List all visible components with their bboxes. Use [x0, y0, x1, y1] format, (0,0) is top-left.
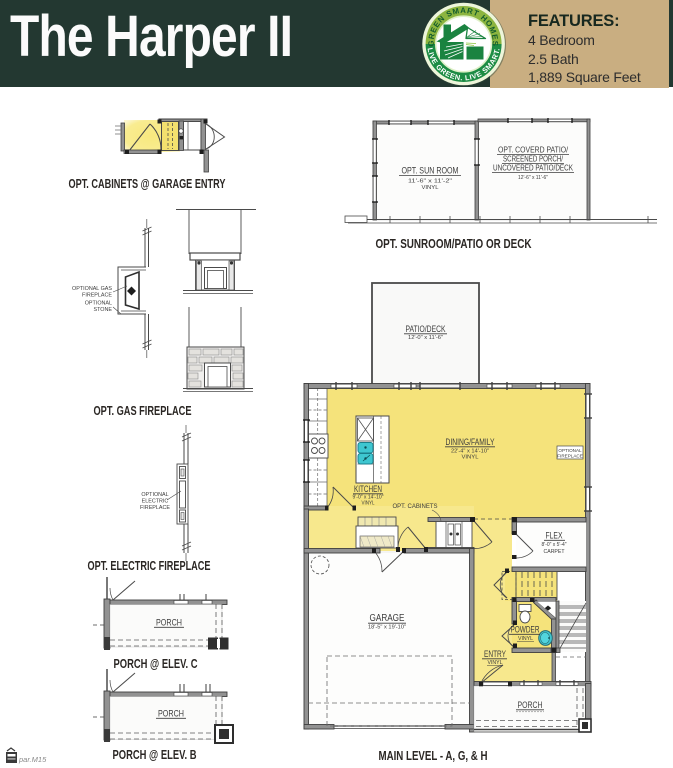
- svg-text:MAIN LEVEL - A, G, & H: MAIN LEVEL - A, G, & H: [379, 749, 488, 763]
- svg-text:OPT. ELECTRIC FIREPLACE: OPT. ELECTRIC FIREPLACE: [88, 559, 211, 573]
- svg-text:VINYL: VINYL: [362, 501, 375, 507]
- svg-text:VINYL: VINYL: [462, 455, 479, 461]
- svg-text:OPTIONAL GAS: OPTIONAL GAS: [72, 286, 112, 292]
- svg-text:11'-6" x 11'-2": 11'-6" x 11'-2": [408, 179, 452, 185]
- svg-text:PORCH: PORCH: [518, 700, 543, 710]
- svg-text:OPTIONAL: OPTIONAL: [558, 448, 582, 453]
- svg-text:POWDER: POWDER: [511, 625, 540, 635]
- svg-text:OPT. CABINETS @ GARAGE ENTRY: OPT. CABINETS @ GARAGE ENTRY: [69, 177, 226, 191]
- svg-text:ENTRY: ENTRY: [484, 649, 506, 659]
- svg-text:OPT. SUNROOM/PATIO OR DECK: OPT. SUNROOM/PATIO OR DECK: [376, 237, 532, 251]
- svg-text:OPT. CABINETS: OPT. CABINETS: [392, 504, 437, 510]
- svg-text:DINING/FAMILY: DINING/FAMILY: [446, 437, 495, 447]
- svg-text:PORCH @ ELEV. B: PORCH @ ELEV. B: [113, 748, 197, 762]
- svg-text:12'-0" x 11'-6": 12'-0" x 11'-6": [408, 335, 443, 341]
- svg-text:PORCH: PORCH: [158, 709, 184, 719]
- svg-text:PATIO/DECK: PATIO/DECK: [406, 324, 446, 334]
- svg-text:FLEX: FLEX: [546, 531, 563, 541]
- svg-text:12'-6" x 11'-6": 12'-6" x 11'-6": [518, 175, 548, 181]
- svg-text:OPT. GAS FIREPLACE: OPT. GAS FIREPLACE: [94, 404, 192, 418]
- svg-text:OPTIONAL: OPTIONAL: [85, 301, 112, 307]
- svg-text:KITCHEN: KITCHEN: [354, 484, 382, 494]
- svg-text:OPT. SUN ROOM: OPT. SUN ROOM: [402, 166, 459, 176]
- svg-text:PORCH: PORCH: [156, 618, 182, 628]
- svg-text:8'-0" x 5'-4": 8'-0" x 5'-4": [542, 542, 567, 548]
- svg-text:ELECTRIC: ELECTRIC: [142, 499, 169, 505]
- svg-text:OPT. COVERD PATIO/: OPT. COVERD PATIO/: [498, 146, 569, 155]
- svg-text:FIREPLACE: FIREPLACE: [82, 293, 112, 299]
- svg-text:VINYL: VINYL: [488, 660, 503, 666]
- svg-text:FIREPLACE: FIREPLACE: [140, 505, 170, 511]
- svg-text:par.M15: par.M15: [18, 755, 47, 764]
- svg-text:OPTIONAL: OPTIONAL: [141, 492, 168, 498]
- svg-text:STONE: STONE: [94, 307, 113, 313]
- svg-text:FIREPLACE: FIREPLACE: [557, 454, 583, 459]
- svg-text:GARAGE: GARAGE: [370, 612, 405, 624]
- svg-text:VINYL: VINYL: [422, 185, 439, 191]
- svg-text:VINYL: VINYL: [518, 636, 533, 642]
- svg-text:CARPET: CARPET: [544, 549, 566, 555]
- svg-text:18'-5" x 19'-10": 18'-5" x 19'-10": [368, 625, 406, 631]
- svg-text:UNCOVERED PATIO/DECK: UNCOVERED PATIO/DECK: [493, 164, 574, 173]
- svg-text:SCREENED PORCH/: SCREENED PORCH/: [503, 155, 564, 164]
- svg-text:PORCH @ ELEV. C: PORCH @ ELEV. C: [114, 657, 198, 671]
